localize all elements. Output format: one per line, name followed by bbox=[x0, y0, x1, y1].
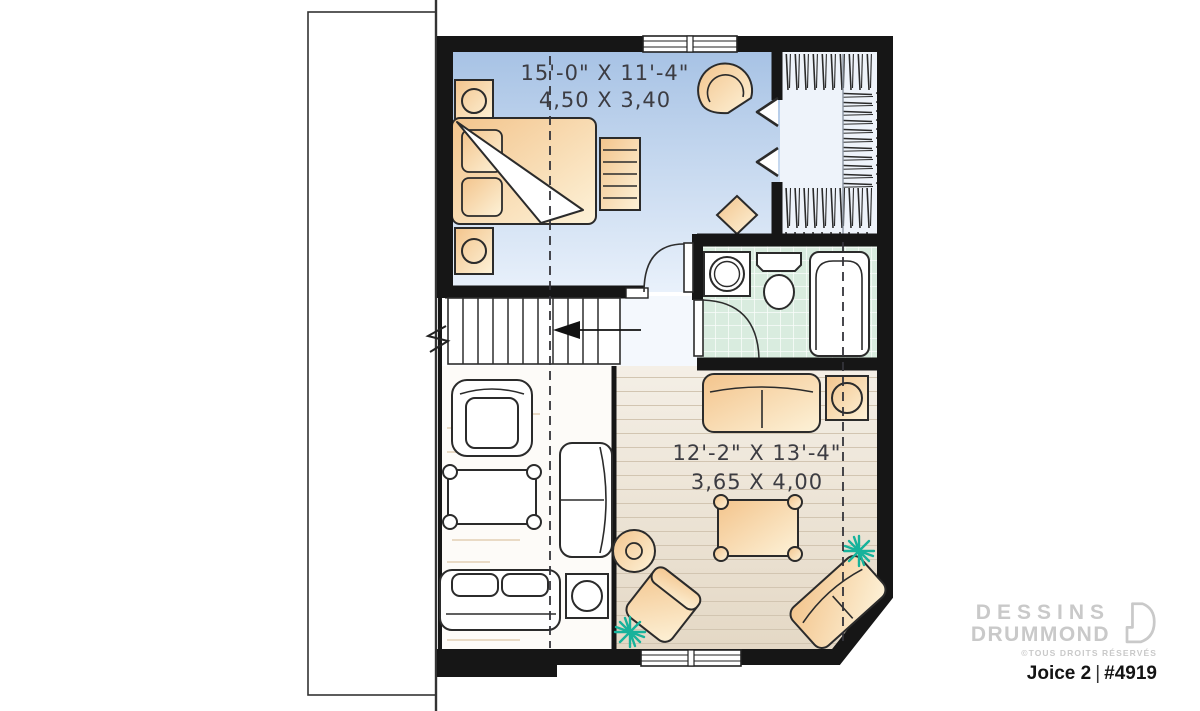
brand-logo: DESSINS DRUMMOND ©TOUS DROITS RÉSERVÉS J… bbox=[971, 597, 1157, 685]
hall-floor bbox=[617, 296, 700, 366]
bed bbox=[452, 118, 596, 224]
bedroom-window bbox=[643, 36, 737, 52]
plan-title: Joice 2|#4919 bbox=[971, 663, 1157, 685]
plant-icon bbox=[615, 617, 645, 647]
annex-outline bbox=[308, 0, 436, 711]
living-end-table bbox=[826, 376, 868, 420]
dresser bbox=[600, 138, 640, 210]
plant-icon bbox=[844, 536, 874, 566]
family-sofa bbox=[440, 570, 560, 630]
bedroom-dimension-metric: 4,50 X 3,40 bbox=[539, 88, 671, 112]
plan-title-separator: | bbox=[1091, 663, 1104, 684]
family-coffee-table bbox=[443, 465, 541, 529]
stairs-floor bbox=[441, 296, 620, 366]
living-room-window bbox=[641, 650, 741, 666]
nightstand-bottom bbox=[455, 228, 493, 274]
sink bbox=[704, 252, 750, 296]
family-loveseat bbox=[560, 443, 612, 557]
living-room-dimension-metric: 3,65 X 4,00 bbox=[691, 470, 823, 494]
drummond-d-icon bbox=[1117, 597, 1157, 645]
living-coffee-table bbox=[714, 495, 802, 561]
family-armchair bbox=[452, 380, 532, 456]
plan-number: #4919 bbox=[1104, 663, 1157, 684]
family-end-table bbox=[566, 574, 608, 618]
nightstand-top bbox=[455, 80, 493, 122]
bedroom-dimension-imperial: 15'-0" X 11'-4" bbox=[521, 61, 690, 85]
brand-name-line2: DRUMMOND bbox=[971, 624, 1110, 645]
living-room-dimension-imperial: 12'-2" X 13'-4" bbox=[673, 441, 842, 465]
living-ottoman bbox=[613, 530, 655, 572]
plan-name: Joice 2 bbox=[1027, 663, 1091, 684]
copyright-text: ©TOUS DROITS RÉSERVÉS bbox=[971, 648, 1157, 658]
living-sofa bbox=[703, 374, 820, 432]
bathtub bbox=[810, 252, 869, 356]
brand-name-line1: DESSINS bbox=[976, 602, 1110, 623]
